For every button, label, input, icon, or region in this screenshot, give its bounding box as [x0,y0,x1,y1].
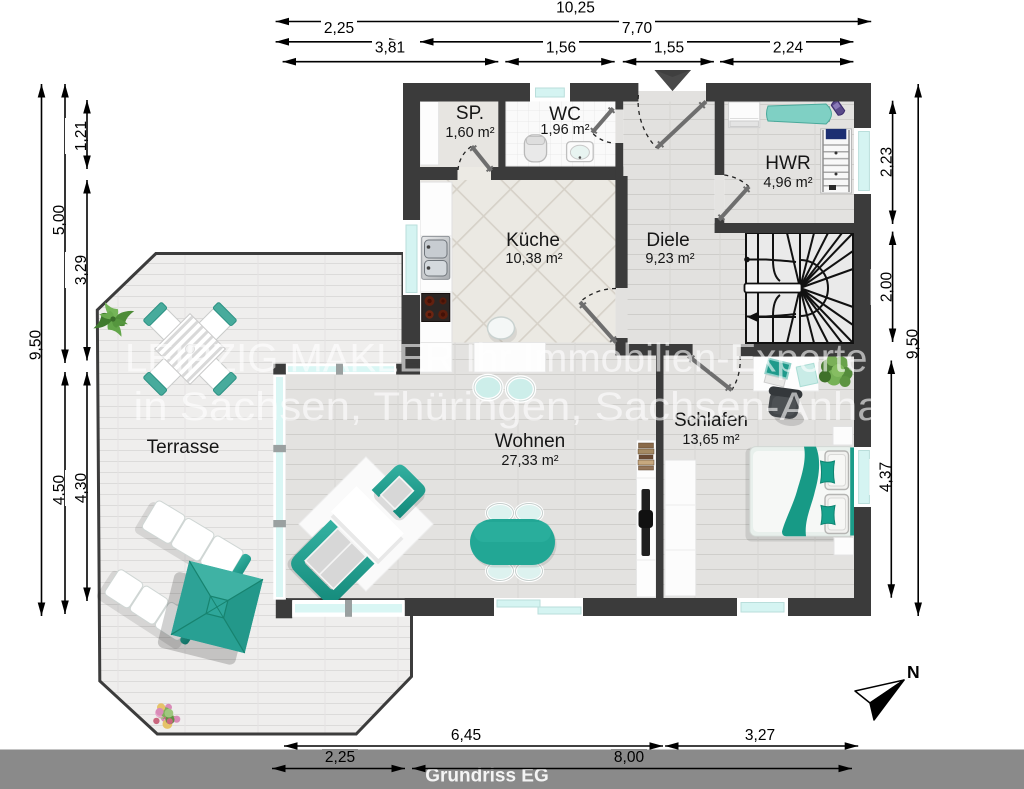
svg-text:2,00: 2,00 [879,272,896,303]
svg-text:4,30: 4,30 [73,473,90,504]
svg-text:1,60 m²: 1,60 m² [445,125,494,141]
svg-text:8,00: 8,00 [614,749,645,766]
svg-text:SP.: SP. [456,103,484,124]
svg-text:3,81: 3,81 [375,40,405,57]
svg-text:13,65 m²: 13,65 m² [682,432,739,448]
svg-text:7,70: 7,70 [622,20,653,37]
svg-text:Wohnen: Wohnen [495,431,565,452]
svg-text:in Sachsen, Thüringen, Sachsen: in Sachsen, Thüringen, Sachsen-Anhalt [134,385,904,429]
svg-text:1,21: 1,21 [73,121,90,151]
svg-text:1,56: 1,56 [546,40,576,57]
svg-text:10,38 m²: 10,38 m² [505,251,562,267]
svg-text:N: N [907,662,920,682]
svg-text:6,45: 6,45 [451,727,481,744]
svg-text:5,00: 5,00 [51,205,68,236]
svg-text:LEIPZIG MAKLER Ihr Immobilien-: LEIPZIG MAKLER Ihr Immobilien-Experte [125,337,867,381]
svg-text:27,33 m²: 27,33 m² [501,453,558,469]
svg-text:10,25: 10,25 [556,0,595,17]
svg-text:HWR: HWR [765,153,810,174]
svg-text:Terrasse: Terrasse [147,437,220,458]
svg-text:9,23 m²: 9,23 m² [645,251,694,267]
svg-text:Diele: Diele [646,230,689,251]
svg-text:2,25: 2,25 [324,20,354,37]
svg-text:4,37: 4,37 [877,462,894,492]
svg-text:2,23: 2,23 [879,147,896,177]
svg-text:2,24: 2,24 [773,40,804,57]
svg-text:3,29: 3,29 [73,255,90,285]
svg-text:3,27: 3,27 [745,727,775,744]
svg-text:2,25: 2,25 [325,749,355,766]
svg-text:Küche: Küche [506,230,560,251]
svg-text:4,96 m²: 4,96 m² [763,175,812,191]
svg-text:1,96 m²: 1,96 m² [540,122,589,138]
svg-text:9,50: 9,50 [28,330,45,361]
svg-text:1,55: 1,55 [654,40,684,57]
svg-text:9,50: 9,50 [904,329,921,360]
